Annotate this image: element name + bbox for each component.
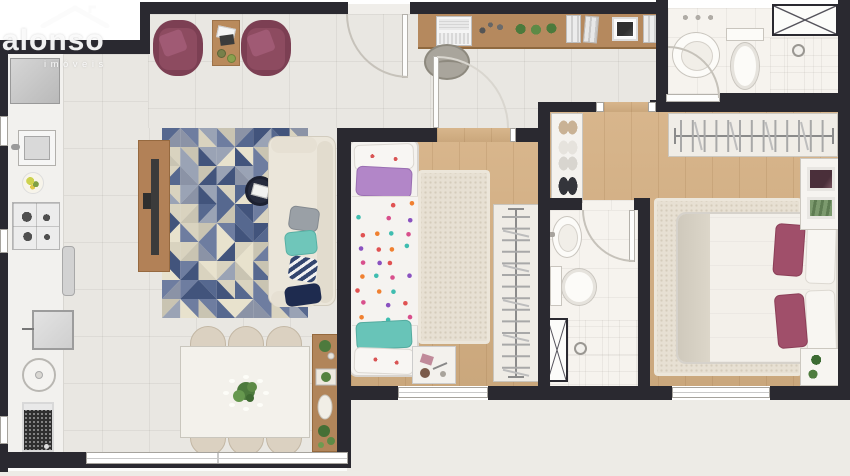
shaft-x-icon (774, 6, 836, 34)
master-closet (668, 113, 838, 157)
books-stack (583, 15, 599, 43)
sofa-pillow-teal (284, 229, 318, 256)
wall (337, 128, 351, 458)
window-bedroom2 (398, 387, 488, 398)
wall (770, 386, 838, 400)
laptop (436, 16, 472, 46)
bed2-pillow-teal (355, 320, 412, 351)
frame-art (616, 21, 634, 37)
laptop-screen (439, 19, 469, 30)
window (0, 416, 8, 444)
single-bed (349, 139, 419, 377)
bed-blanket (678, 214, 712, 362)
shoe-pair-beige (557, 120, 579, 135)
toilet-social-bowl (730, 42, 760, 90)
sofa-pillow-navy (284, 283, 322, 308)
media-box (143, 193, 151, 209)
window (0, 116, 8, 146)
faucet-social (680, 13, 716, 22)
wall (337, 128, 437, 142)
books-stack (566, 15, 581, 43)
wardrobe-bedroom2 (493, 204, 539, 382)
doorway-bedroom2 (437, 128, 512, 142)
sideboard (312, 334, 338, 452)
sofa (268, 136, 336, 306)
house-roof-icon (40, 4, 110, 28)
armchair (153, 20, 203, 76)
sofa-pillow-gray (287, 205, 320, 233)
window-dining (86, 452, 348, 464)
craft-items (413, 347, 457, 385)
wall (634, 198, 650, 210)
sideboard-decor (313, 335, 339, 453)
kitchen-sink (18, 130, 56, 166)
shoe-pair-white (557, 156, 579, 171)
washer-knob (44, 444, 49, 449)
window (0, 229, 8, 253)
wall (656, 0, 668, 103)
washer-panel (24, 404, 52, 410)
wall (538, 102, 550, 390)
cup (217, 49, 226, 58)
craft-table (412, 346, 456, 384)
exterior-ground (345, 400, 850, 476)
wall (838, 0, 850, 400)
duct-shaft (772, 4, 838, 36)
watermark: alonso imóveis (2, 2, 122, 70)
toilet-social-tank (726, 28, 764, 41)
dining-table (180, 346, 310, 438)
shoe-pair-white (557, 140, 579, 155)
desk-plants (514, 22, 558, 36)
entry-threshold (348, 4, 410, 14)
watermark-tagline: imóveis (44, 59, 122, 70)
sofa-armrest (271, 137, 317, 153)
master-pillow-maroon (774, 293, 809, 349)
wall (410, 2, 660, 14)
food-plate (22, 172, 44, 194)
frame-shelf (800, 158, 842, 230)
decor-object (219, 34, 234, 46)
gas-stove (12, 202, 60, 250)
armchair (241, 20, 291, 76)
wall (720, 93, 838, 103)
window-master (672, 387, 770, 398)
closet-hangers-vertical (494, 205, 538, 381)
tv-console (138, 140, 170, 272)
exterior-ground-left (0, 471, 347, 476)
watermark-brand: alonso (2, 26, 122, 56)
tv (151, 159, 159, 255)
double-bed (676, 212, 838, 364)
shoe-pair-black (557, 176, 579, 196)
master-pillow-white (805, 289, 837, 354)
kitchen-faucet (11, 144, 20, 150)
cabinet-door (62, 246, 75, 296)
shower-head-suite (574, 342, 587, 355)
desk-accessories (476, 20, 508, 36)
bed2-pillow-white (354, 347, 415, 375)
master-pillow-maroon (772, 223, 806, 277)
laptop-keyboard (439, 33, 469, 44)
laundry-tank (22, 358, 56, 392)
door-jamb (510, 128, 516, 142)
nightstand (800, 348, 842, 386)
doorway-bath-suite (582, 200, 634, 210)
sink-basin (24, 136, 50, 160)
washbasin-suite (552, 216, 582, 258)
door-jamb (648, 102, 656, 112)
bedroom2-rug (418, 170, 490, 344)
sofa-back (317, 141, 333, 303)
frame-maroon (807, 167, 835, 191)
toilet-suite-bowl (561, 268, 597, 306)
tank-drain (35, 371, 43, 379)
doorway-suite (604, 102, 648, 112)
sofa-pillow-zigzag (287, 255, 319, 283)
wall (148, 2, 348, 14)
wall (638, 198, 650, 390)
hatch-handle (22, 328, 34, 330)
frame-green (807, 197, 835, 219)
shaft-x-icon (548, 320, 566, 380)
wall (538, 102, 600, 112)
picture-frame (612, 17, 638, 41)
shower-head-social (792, 44, 805, 57)
service-hatch (32, 310, 74, 350)
basin-bowl (558, 224, 578, 252)
table-centerpiece (221, 371, 271, 415)
shoe-rack (551, 113, 583, 203)
wall (538, 198, 582, 210)
closet-hangers-horizontal (669, 114, 837, 156)
floor-plan: alonso imóveis (0, 0, 850, 476)
bed2-pillow-lavender (355, 166, 412, 199)
cup (227, 54, 236, 63)
duvet-dots (352, 197, 418, 325)
bed2-duvet (352, 196, 418, 326)
door-jamb (596, 102, 604, 112)
kitchen-counter (8, 54, 64, 456)
washing-machine (22, 402, 54, 452)
side-table (212, 20, 240, 66)
